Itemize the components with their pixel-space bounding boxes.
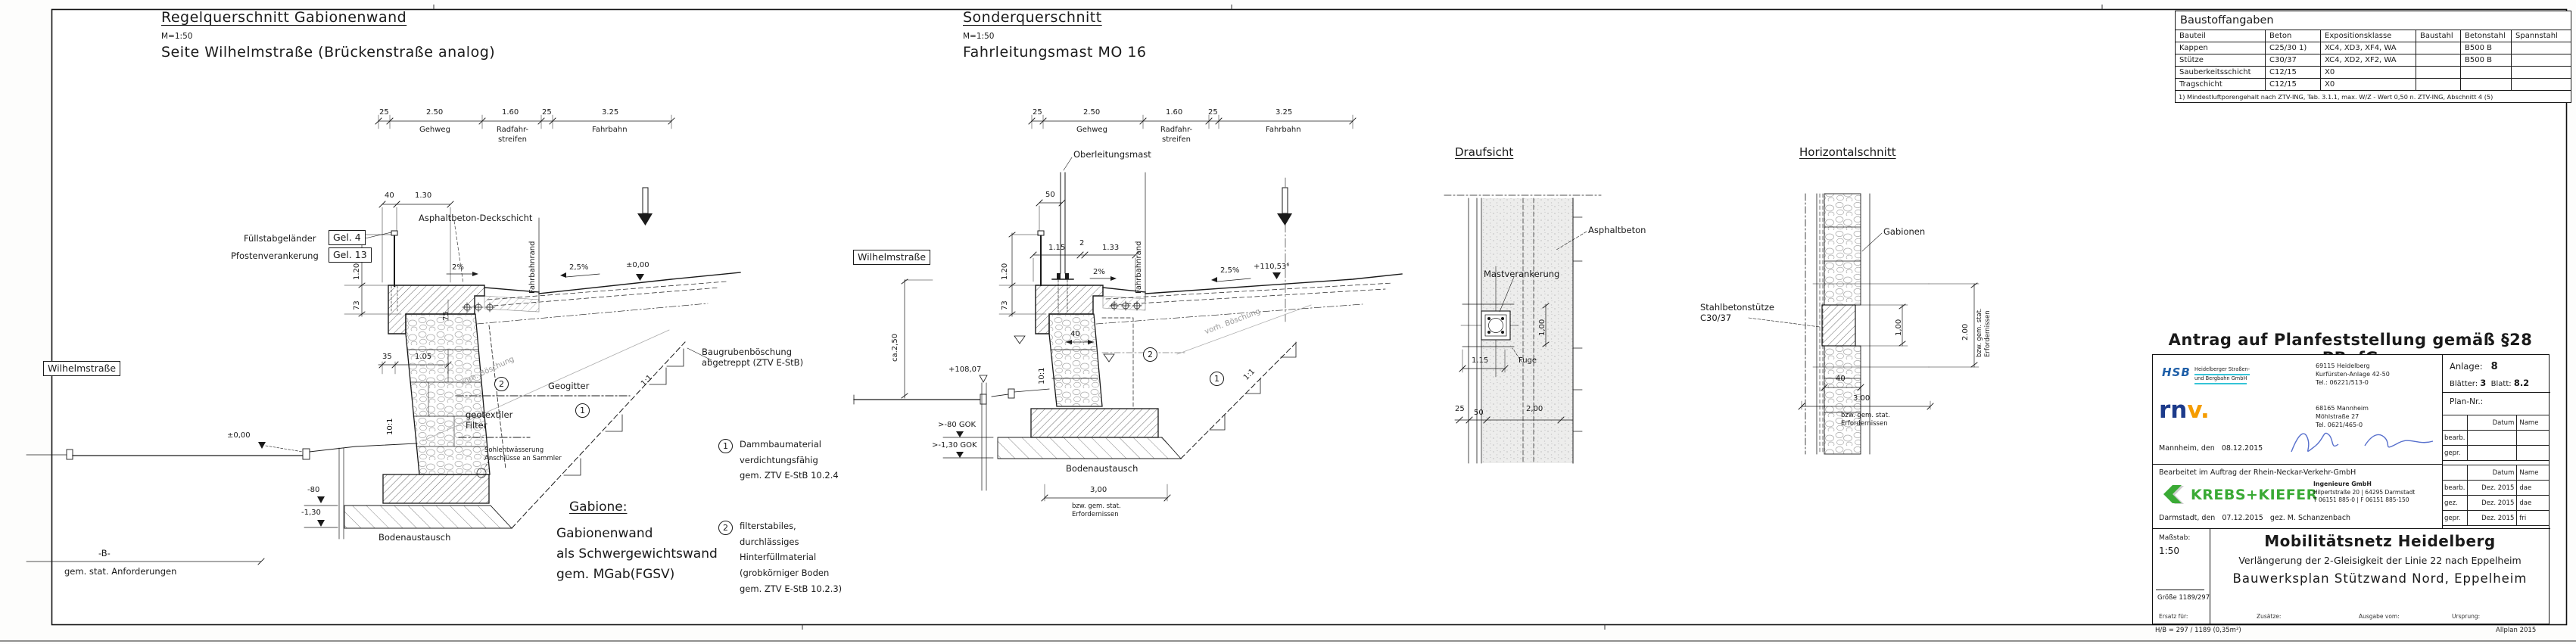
dim-25-mid: 25	[542, 108, 552, 118]
project-title: Mobilitätsnetz Heidelberg	[2210, 532, 2550, 550]
table-row: gepr.	[2442, 446, 2549, 461]
dim-25-mid-s: 25	[1208, 108, 1218, 118]
table-row: bearb.Dez. 2015dae	[2442, 481, 2549, 496]
blatt-label: Blatt:	[2491, 380, 2512, 388]
rnv-logo: rnv.	[2159, 399, 2210, 422]
anlage-value: 8	[2491, 361, 2498, 372]
project-title-block: Mobilitätsnetz Heidelberg Verlängerung d…	[2210, 532, 2550, 586]
lbl-asphaltbeton-deckschicht: Asphaltbeton-Deckschicht	[419, 213, 532, 223]
dim-1-60: 1.60	[502, 108, 519, 118]
lbl-pfostenverankerung: Pfostenverankerung	[231, 250, 319, 261]
circ-note-2: 2	[718, 521, 733, 535]
auftrag-line: Bearbeitet im Auftrag der Rhein-Neckar-V…	[2159, 468, 2356, 477]
dim-50-drauf: 50	[1474, 409, 1484, 418]
cell	[2416, 42, 2461, 54]
dim-25-left: 25	[379, 108, 389, 118]
sonder-scale: M=1:50	[963, 32, 994, 42]
dim-3-25: 3.25	[602, 108, 618, 118]
table-header-row: BauteilBetonExpositionsklasseBaustahlBet…	[2176, 30, 2571, 42]
dim-3-00-sonder: 3,00	[1090, 486, 1107, 496]
blatt-row: Blätter: 3 Blatt: 8.2	[2450, 378, 2529, 388]
dim-50: 50	[1045, 191, 1055, 201]
lbl-asphaltbeton: Asphaltbeton	[1588, 225, 1646, 235]
sonder-title: Sonderquerschnitt	[963, 9, 1102, 27]
cell: Beton	[2266, 30, 2321, 42]
cap-fahrbahn-s: Fahrbahn	[1266, 126, 1301, 135]
circ-2-sonder: 2	[1143, 347, 1157, 362]
dim-1-00-horiz: 1,00	[1895, 319, 1905, 336]
lbl-bzw-stat-sonder: bzw. gem. stat. Erfordernissen	[1072, 502, 1121, 518]
lbl-2-5pct-sonder: 2,5%	[1220, 266, 1239, 276]
lbl-level-110-53: +110,53⁶	[1254, 263, 1289, 272]
masstab-value: 1:50	[2159, 546, 2179, 556]
dim-2-00-drauf: 2,00	[1526, 405, 1543, 415]
cell: bearb.	[2442, 431, 2468, 446]
hsb-company-name: Heidelberger Straßen- und Bergbahn GmbH	[2194, 366, 2250, 384]
dim-1-15-drauf: 1.15	[1472, 356, 1488, 366]
lbl-stahlbetonstuetze: Stahlbetonstütze C30/37	[1700, 302, 1774, 324]
heidelberg-address: 69115 Heidelberg Kurfürsten-Anlage 42-50…	[2316, 362, 2390, 387]
regel-scale: M=1:50	[161, 32, 192, 42]
dim-2-00-horiz: 2.00	[1961, 324, 1971, 341]
cell: XC4, XD3, XF4, WA	[2321, 42, 2416, 54]
lbl-neigung-10-1-regel: 10:1	[386, 418, 396, 435]
divider	[2153, 528, 2550, 529]
lbl-2pct-sonder: 2%	[1093, 268, 1105, 278]
lbl-level-000-road: ±0,00	[626, 261, 649, 271]
table-title-row: Baustoffangaben	[2176, 11, 2571, 30]
cell: Dez. 2015	[2468, 481, 2517, 496]
dim-3-00-horiz: 3.00	[1853, 394, 1870, 404]
approval-table-1: DatumNamebearb.gepr.	[2442, 415, 2549, 461]
ersatz-label: Ersatz für:	[2159, 613, 2188, 620]
cell: Dez. 2015	[2468, 496, 2517, 511]
dim-35: 35	[382, 353, 392, 362]
lbl-bzw-stat-horiz: bzw. gem. stat. Erfordernissen	[1841, 412, 1890, 428]
cell: fri	[2517, 511, 2549, 526]
divider	[2442, 392, 2550, 393]
rnv-rn: rn	[2159, 397, 2187, 424]
cell	[2442, 465, 2468, 481]
cell: X0	[2321, 79, 2416, 91]
table-row: gepr.Dez. 2015fri	[2442, 511, 2549, 526]
circ-1-sonder: 1	[1210, 372, 1224, 386]
cell: Betonstahl	[2461, 30, 2512, 42]
mannheim-date: 08.12.2015	[2222, 444, 2263, 453]
lbl-2pct-regel: 2%	[452, 263, 464, 273]
cell	[2517, 446, 2549, 461]
cell	[2512, 79, 2571, 91]
cell: XC4, XD2, XF2, WA	[2321, 54, 2416, 67]
drawing-sheet: Regelquerschnitt GabionenwandM=1:50Seite…	[0, 0, 2576, 644]
cell	[2461, 67, 2512, 79]
cell: B500 B	[2461, 42, 2512, 54]
cell: C25/30 1)	[2266, 42, 2321, 54]
circ-note-1: 1	[718, 439, 733, 453]
signature-icon	[2285, 423, 2441, 459]
dim-2-50-s: 2.50	[1083, 108, 1100, 118]
cell: Name	[2517, 415, 2549, 431]
cell: bearb.	[2442, 481, 2468, 496]
cell: gepr.	[2442, 511, 2468, 526]
cell: Tragschicht	[2176, 79, 2266, 91]
dim-25-left-s: 25	[1033, 108, 1042, 118]
sonder-subtitle: Fahrleitungsmast MO 16	[963, 44, 1147, 62]
lbl-neigung-1-1-regel: 1:1	[640, 374, 655, 389]
lbl-level-108-07: +108,07	[948, 366, 981, 375]
lbl-vorh-boeschung-sonder: vorh. Böschung	[1204, 307, 1262, 338]
cell: Sauberkeitsschicht	[2176, 67, 2266, 79]
software-note: Allplan 2015	[2496, 627, 2536, 634]
lbl-level-m130-regel: -1,30	[301, 509, 321, 518]
title-block: HSB Heidelberger Straßen- und Bergbahn G…	[2152, 354, 2550, 624]
table-row: gez.Dez. 2015dae	[2442, 496, 2549, 511]
darmstadt-signed-by: gez. M. Schanzenbach	[2270, 514, 2350, 522]
mannheim-date-line: Mannheim, den 08.12.2015	[2159, 444, 2263, 453]
lbl-sohlentwaesserung: Sohlentwässerung Anschlüsse an Sammler	[484, 446, 562, 462]
table-header-row: DatumName	[2442, 465, 2549, 481]
cell: gepr.	[2442, 446, 2468, 461]
lbl-bodenaustausch-regel: Bodenaustausch	[378, 532, 450, 543]
cell	[2416, 67, 2461, 79]
lbl-level-000-street: ±0,00	[227, 431, 251, 441]
approval-table-2: DatumNamebearb.Dez. 2015daegez.Dez. 2015…	[2442, 465, 2549, 526]
cell: C12/15	[2266, 67, 2321, 79]
rnv-v: v.	[2187, 397, 2209, 424]
cell: Expositionsklasse	[2321, 30, 2416, 42]
cap-radfahrstreifen: Radfahr- streifen	[493, 126, 532, 145]
lbl-oberleitungsmast: Oberleitungsmast	[1073, 149, 1151, 160]
dim-3-25-s: 3.25	[1276, 108, 1292, 118]
blatt-value: 8.2	[2514, 378, 2529, 388]
dim-1-60-s: 1.60	[1166, 108, 1182, 118]
cell: Datum	[2468, 465, 2517, 481]
circ-1-regel: 1	[575, 403, 590, 418]
cap-radfahrstreifen-s: Radfahr- streifen	[1157, 126, 1196, 145]
lbl-baugrubenboeschung: Baugrubenböschung abgetreppt (ZTV E-StB)	[702, 347, 803, 369]
dim-75: 75	[442, 311, 452, 321]
darmstadt-date-line: Darmstadt, den 07.12.2015 gez. M. Schanz…	[2159, 514, 2350, 522]
cell: Kappen	[2176, 42, 2266, 54]
dim-40-horiz: 40	[1836, 375, 1846, 384]
lbl-neigung-1-1-sonder: 1:1	[1242, 368, 1257, 383]
lbl-bodenaustausch-sonder: Bodenaustausch	[1066, 463, 1138, 474]
darmstadt-label: Darmstadt, den	[2159, 514, 2215, 522]
box-wilhelmstrasse-sonder: Wilhelmstraße	[853, 250, 930, 265]
table-header-row: DatumName	[2442, 415, 2549, 431]
divider	[2156, 590, 2204, 590]
cell	[2416, 54, 2461, 67]
dim-1-20-regel: 1.20	[353, 263, 363, 280]
cell	[2461, 79, 2512, 91]
dim-1-20-sonder: 1.20	[1001, 263, 1011, 280]
cell: gez.	[2442, 496, 2468, 511]
cap-fahrbahn: Fahrbahn	[592, 126, 628, 135]
hsb-name-line2: und Bergbahn GmbH	[2194, 375, 2247, 384]
cell: Name	[2517, 465, 2549, 481]
regel-title: Regelquerschnitt Gabionenwand	[161, 9, 406, 27]
hsb-name-line1: Heidelberger Straßen-	[2194, 366, 2250, 375]
cap-gehweg: Gehweg	[419, 126, 450, 135]
lbl-geotextiler-filter: geotextiler Filter	[466, 409, 512, 431]
lbl-fuge: Fuge	[1519, 356, 1537, 366]
lbl-gok-130: >-1,30 GOK	[932, 441, 977, 451]
cell	[2468, 446, 2517, 461]
cell: Spannstahl	[2512, 30, 2571, 42]
lbl-geogitter: Geogitter	[548, 381, 589, 391]
cell: dae	[2517, 481, 2549, 496]
box-gel-4: Gel. 4	[329, 230, 366, 245]
cell: dae	[2517, 496, 2549, 511]
divider	[2153, 464, 2442, 465]
format-note: H/B = 297 / 1189 (0,35m²)	[2155, 627, 2241, 634]
mannheim-label: Mannheim, den	[2159, 444, 2215, 453]
zusatz-label: Zusätze:	[2257, 613, 2281, 620]
draufsicht-title: Draufsicht	[1455, 145, 1513, 160]
materials-table: BaustoffangabenBauteilBetonExpositionskl…	[2175, 11, 2571, 103]
dim-40: 40	[385, 191, 394, 201]
note-2-text: filterstabiles, durchlässiges Hinterfüll…	[740, 518, 842, 596]
cell	[2517, 431, 2549, 446]
dim-1-33: 1.33	[1102, 244, 1119, 254]
dim-2-50: 2.50	[426, 108, 443, 118]
plan-name: Bauwerksplan Stützwand Nord, Eppelheim	[2210, 571, 2550, 586]
lbl-gabionenwand-text: Gabionenwand als Schwergewichtswand gem.…	[556, 524, 718, 586]
box-gel-13: Gel. 13	[329, 247, 372, 263]
lbl-stat-anforderungen: gem. stat. Anforderungen	[64, 566, 176, 577]
dim-ca-2-50: ca.2,50	[891, 334, 901, 362]
cell: C30/37	[2266, 54, 2321, 67]
dim-1-05: 1.05	[415, 353, 431, 362]
table-row: TragschichtC12/15X0	[2176, 79, 2571, 91]
lbl-bzw-stat-horiz-v: bzw. gem. stat. Erfordernissen	[1976, 308, 1992, 357]
blaetter-value: 3	[2480, 378, 2486, 388]
dim-1-00-drauf: 1,00	[1538, 319, 1548, 336]
dim-25-drauf: 25	[1455, 405, 1465, 415]
cell	[2512, 54, 2571, 67]
cell	[2468, 431, 2517, 446]
regel-subtitle: Seite Wilhelmstraße (Brückenstraße analo…	[161, 44, 495, 62]
dim-73-regel: 73	[353, 300, 363, 310]
hsb-logo: HSB	[2162, 366, 2191, 379]
cell: Dez. 2015	[2468, 511, 2517, 526]
lbl-fahrbahnrand-2: Fahrbahnrand	[1135, 241, 1145, 294]
kk-company: Ingenieure GmbH	[2313, 481, 2372, 487]
lbl-gok-80: >-80 GOK	[938, 421, 976, 431]
dim-1-30: 1.30	[415, 191, 431, 201]
note-1-text: Dammbaumaterial verdichtungsfähig gem. Z…	[740, 437, 839, 484]
circ-2-regel: 2	[494, 377, 509, 391]
anlage-label: Anlage:	[2450, 361, 2483, 372]
lbl-fuellstabgelaender: Füllstabgeländer	[244, 233, 316, 244]
darmstadt-date: 07.12.2015	[2222, 514, 2263, 522]
krebs-kiefer-name: KREBS+KIEFER	[2191, 487, 2318, 503]
project-subtitle: Verlängerung der 2-Gleisigkeit der Linie…	[2210, 555, 2550, 566]
blaetter-label: Blätter:	[2450, 380, 2478, 388]
cell: Stütze	[2176, 54, 2266, 67]
dim-1-15: 1.15	[1048, 244, 1065, 254]
cell: Baustoffangaben	[2176, 11, 2571, 30]
lbl-mastverankerung: Mastverankerung	[1484, 269, 1559, 279]
cell: 1) Mindestluftporengehalt nach ZTV-ING, …	[2176, 91, 2571, 103]
cell	[2416, 79, 2461, 91]
groesse-line: Größe 1189/297	[2157, 594, 2210, 602]
anlage-row: Anlage: 8	[2450, 361, 2498, 372]
cell: Baustahl	[2416, 30, 2461, 42]
dim-40-sonder: 40	[1070, 330, 1080, 340]
cell: X0	[2321, 67, 2416, 79]
masstab-label: Maßstab:	[2159, 534, 2190, 542]
dim-73-sonder: 73	[1001, 300, 1011, 310]
cell: B500 B	[2461, 54, 2512, 67]
lbl-gabione-heading: Gabione:	[569, 499, 627, 515]
cap-gehweg-s: Gehweg	[1076, 126, 1107, 135]
horizontalschnitt-title: Horizontalschnitt	[1799, 145, 1896, 160]
table-row: StützeC30/37XC4, XD2, XF2, WAB500 B	[2176, 54, 2571, 67]
box-wilhelmstrasse-regel: Wilhelmstraße	[43, 361, 120, 376]
plan-nr-label: Plan-Nr.:	[2450, 397, 2483, 406]
cell	[2512, 67, 2571, 79]
table-row: bearb.	[2442, 431, 2549, 446]
table-footnote-row: 1) Mindestluftporengehalt nach ZTV-ING, …	[2176, 91, 2571, 103]
ausgabe-label: Ausgabe vom:	[2359, 613, 2400, 620]
cell: C12/15	[2266, 79, 2321, 91]
dim-2: 2	[1079, 239, 1084, 249]
kk-address-lines: Hilpertstraße 20 | 64295 Darmstadt T 061…	[2313, 489, 2415, 504]
lbl-2-5pct-regel: 2,5%	[569, 263, 588, 273]
krebs-kiefer-logo-icon	[2162, 484, 2186, 506]
lbl-neigung-10-1-sonder: 10:1	[1038, 368, 1048, 384]
cell: Bauteil	[2176, 30, 2266, 42]
table-row: KappenC25/30 1)XC4, XD3, XF4, WAB500 B	[2176, 42, 2571, 54]
lbl-b-dim: -B-	[98, 548, 111, 558]
krebs-kiefer-address: Ingenieure GmbH Hilpertstraße 20 | 64295…	[2313, 481, 2415, 504]
cell: Datum	[2468, 415, 2517, 431]
lbl-level-m80-regel: -80	[307, 486, 319, 496]
table-row: SauberkeitsschichtC12/15X0	[2176, 67, 2571, 79]
lbl-fahrbahnrand-1: Fahrbahnrand	[528, 241, 538, 294]
ursprung-label: Ursprung:	[2452, 613, 2480, 620]
lbl-gabionen: Gabionen	[1883, 226, 1925, 237]
cell	[2442, 415, 2468, 431]
cell	[2512, 42, 2571, 54]
